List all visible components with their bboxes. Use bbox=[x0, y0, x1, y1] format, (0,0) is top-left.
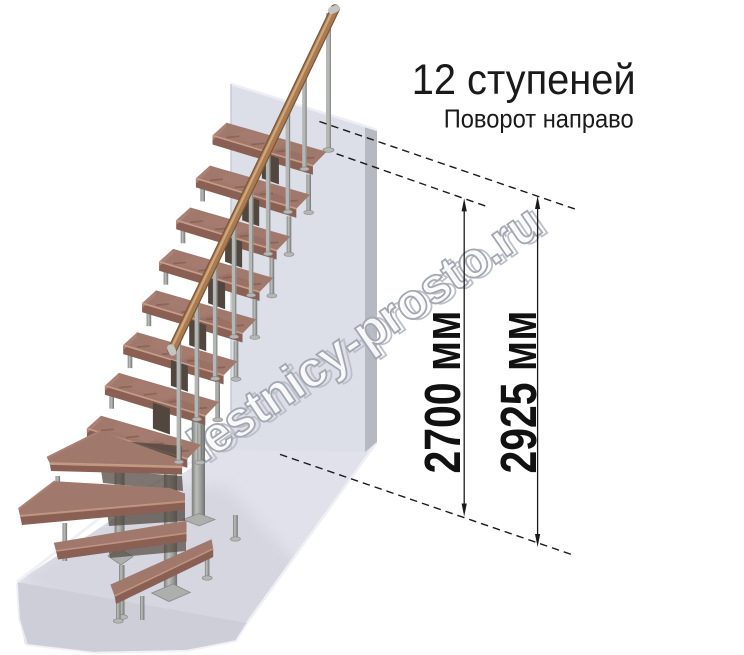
svg-text:2925 мм: 2925 мм bbox=[490, 311, 547, 474]
svg-text:12 ступеней: 12 ступеней bbox=[412, 56, 636, 104]
svg-text:2700 мм: 2700 мм bbox=[414, 311, 471, 474]
svg-text:Поворот направо: Поворот направо bbox=[444, 104, 634, 134]
